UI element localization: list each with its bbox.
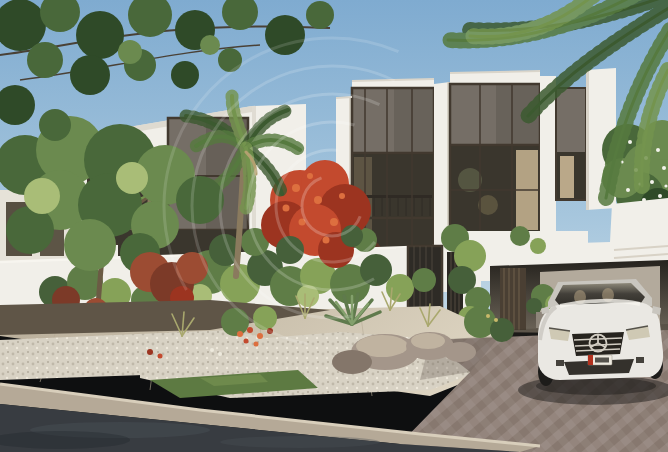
rendered-scene — [0, 0, 668, 452]
property-photo — [0, 0, 668, 452]
license-plate — [588, 355, 612, 365]
